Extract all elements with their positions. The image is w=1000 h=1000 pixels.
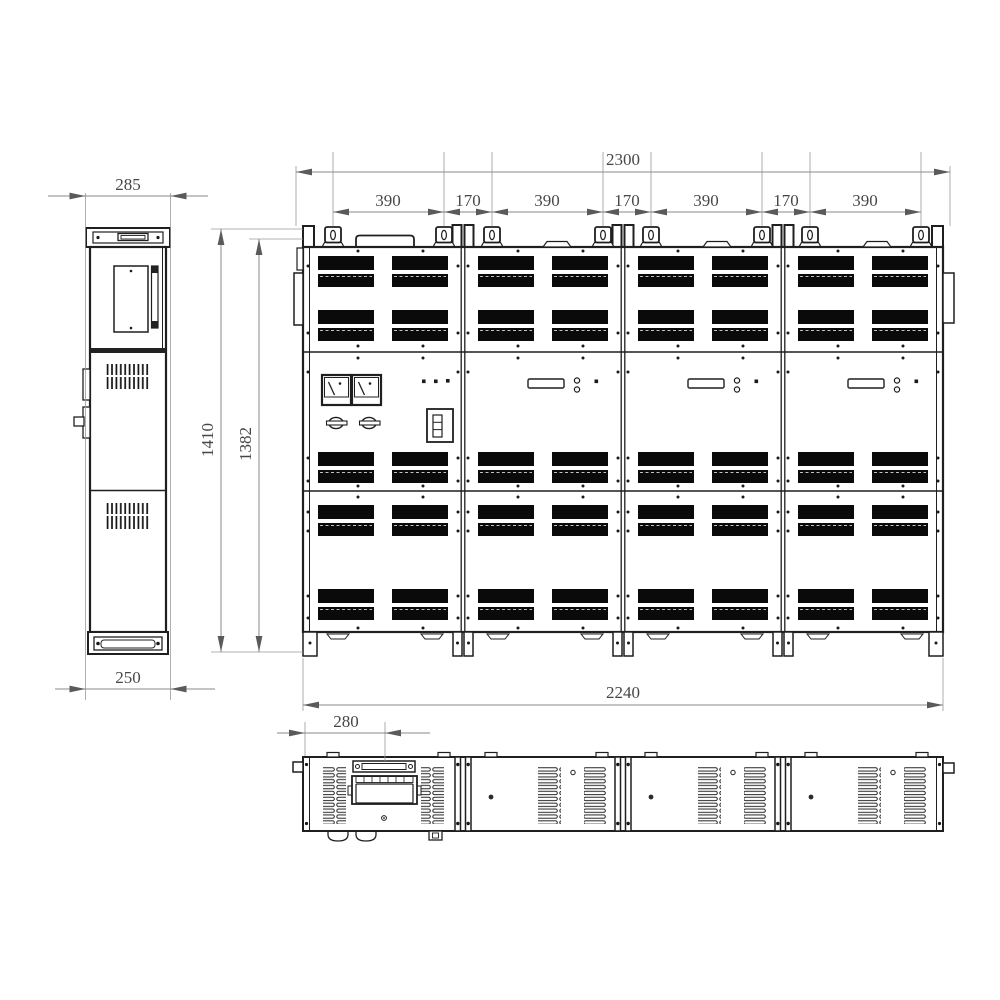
dim-height-total: 1410: [198, 229, 224, 652]
dim-front-width: 2300: [296, 150, 950, 175]
enclosure-outline: [303, 247, 943, 632]
indicator-lamp: [434, 380, 438, 384]
roof-side-tab: [943, 763, 954, 773]
gland-hook: [356, 831, 376, 841]
dim-label-chain-4: 390: [693, 191, 719, 210]
roof-louver: [421, 767, 444, 824]
dim-side-bottom-width: 250: [55, 668, 215, 692]
door-sill: [90, 348, 166, 353]
roof-end-bracket: [932, 226, 943, 247]
feet: [303, 632, 943, 656]
technical-drawing: 285 250 1410 1382 2300: [0, 0, 1000, 1000]
dim-label-chain-0: 390: [375, 191, 401, 210]
cabinet-base: [88, 632, 168, 654]
breaker-switch-icon: [427, 409, 453, 442]
dim-label-2240: 2240: [606, 683, 640, 702]
dim-base-width: 2240: [303, 683, 943, 708]
indicator-lamp: [422, 380, 426, 384]
dim-label-1410: 1410: [198, 423, 217, 457]
dim-lug-chain: 390 170 390 170 390 170 390: [333, 191, 921, 215]
side-flange: [297, 248, 303, 270]
dim-label-chain-6: 390: [852, 191, 878, 210]
front-view: [294, 225, 954, 656]
gland-tab: [429, 831, 442, 840]
side-flange: [943, 273, 954, 323]
side-flange: [294, 273, 303, 325]
busbar-cover: [356, 236, 414, 248]
door-hinge: [83, 369, 90, 400]
roof-end-bracket: [303, 226, 314, 247]
dim-label-chain-5: 170: [773, 191, 799, 210]
dim-label-chain-2: 390: [534, 191, 560, 210]
dim-top-offset: 280: [277, 712, 430, 736]
dim-side-top-width: 285: [48, 175, 208, 199]
dim-label-280: 280: [333, 712, 359, 731]
door-handle: [152, 266, 159, 328]
dim-label-250: 250: [115, 668, 141, 687]
side-vent-grille: [105, 377, 149, 389]
dim-label-chain-3: 170: [614, 191, 640, 210]
dim-height-front: 1382: [236, 239, 262, 652]
side-vent-grille: [105, 516, 149, 529]
dim-label-chain-1: 170: [455, 191, 481, 210]
dim-label-2300: 2300: [606, 150, 640, 169]
door-latch: [74, 417, 84, 426]
indicator-lamp: [446, 379, 450, 383]
drawing-canvas: 285 250 1410 1382 2300: [0, 0, 1000, 1000]
gland-hook: [328, 831, 348, 841]
dim-label-285: 285: [115, 175, 141, 194]
roof-louver: [323, 767, 346, 824]
side-vent-grille: [105, 503, 149, 514]
top-view: [293, 753, 954, 842]
roof-side-tab: [293, 762, 303, 772]
terminal-box: [348, 776, 421, 804]
dim-label-1382: 1382: [236, 427, 255, 461]
side-view: [74, 228, 170, 654]
side-vent-grille: [105, 364, 149, 375]
